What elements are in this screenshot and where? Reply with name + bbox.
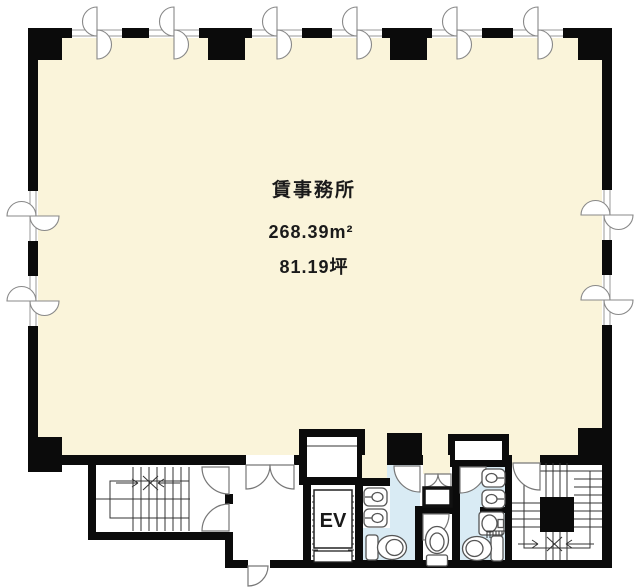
toilet-icon — [366, 535, 407, 560]
column — [28, 437, 62, 472]
toilet-icon — [463, 536, 504, 561]
stairs-icon-left — [96, 467, 190, 531]
sink-icon — [479, 512, 504, 535]
urinal-icon — [364, 509, 387, 527]
area-sqm-label: 268.39m² — [268, 222, 353, 242]
door-arc-icon — [270, 465, 294, 489]
door-arc-icon — [246, 465, 270, 489]
door-arc-icon — [513, 463, 540, 490]
stair-core-column — [540, 497, 574, 532]
entrance-door-arc-icon — [248, 566, 268, 586]
elevator: EV — [312, 490, 354, 562]
toilet-icon — [426, 527, 449, 567]
elevator-label: EV — [320, 510, 347, 532]
toilet-vestibule — [423, 474, 451, 566]
column — [387, 433, 422, 465]
urinal-icon — [364, 488, 387, 506]
column — [390, 28, 427, 60]
office-floor — [33, 33, 607, 460]
door-arc-icon — [425, 474, 438, 487]
floor-plan: EV — [0, 0, 640, 587]
room-name-label: 賃事務所 — [271, 178, 356, 201]
door-arc-icon — [438, 474, 451, 487]
door-arc-icon — [202, 467, 229, 494]
area-tsubo-label: 81.19坪 — [279, 257, 348, 277]
door-arc-icon — [202, 504, 229, 531]
elevator-sill — [314, 551, 352, 562]
column — [208, 28, 245, 60]
urinal-icon — [482, 490, 505, 508]
urinal-icon — [482, 469, 505, 487]
shelf — [424, 488, 451, 506]
